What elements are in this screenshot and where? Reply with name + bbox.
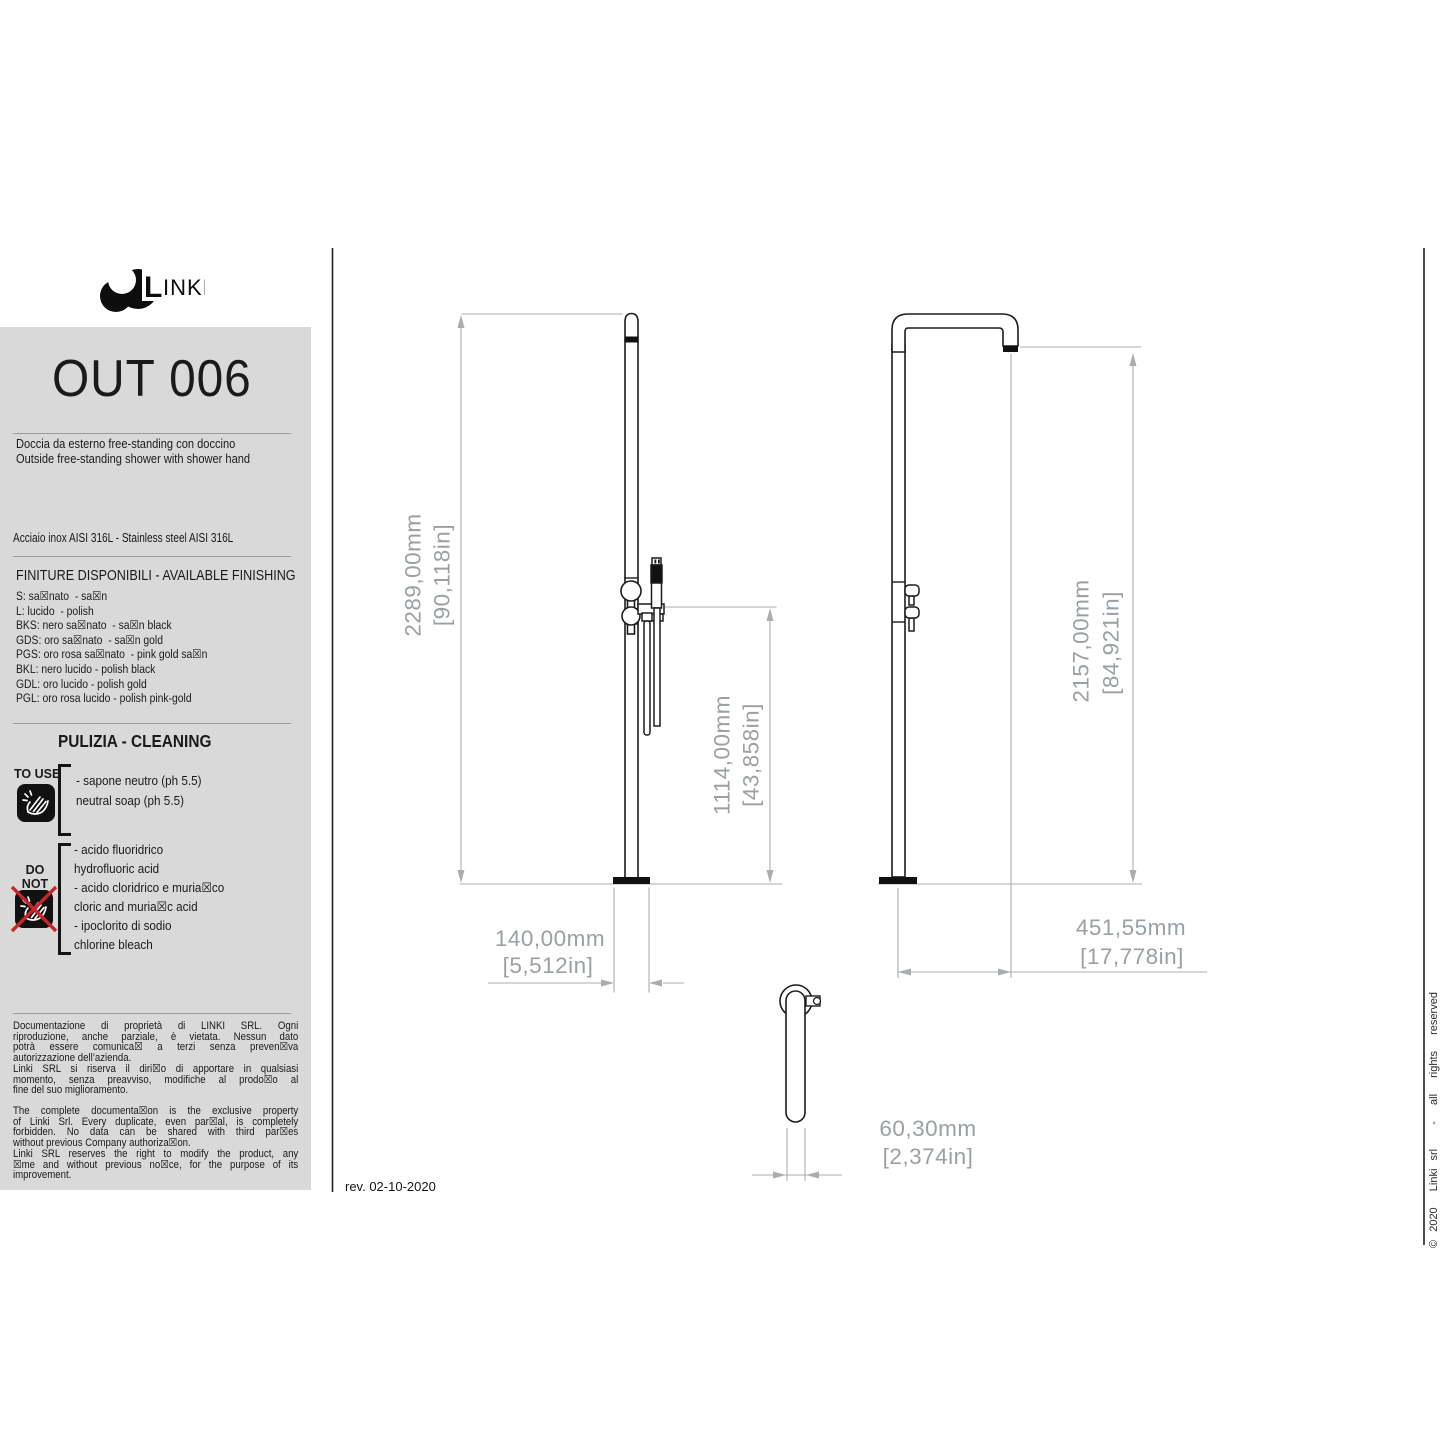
- dim-front-height-in: [90,118in]: [430, 524, 455, 626]
- mixer-knobs-side: [905, 585, 919, 631]
- datasheet-page: L INKI OUT 006 Doccia da esterno free-st…: [0, 0, 1445, 1445]
- dim-base-width-in: [5,512in]: [503, 953, 594, 978]
- front-view: [460, 314, 782, 993]
- base-plate-side: [879, 877, 917, 884]
- dim-arm-width-mm: 60,30mm: [879, 1116, 976, 1141]
- dim-arm-width-in: [2,374in]: [883, 1144, 974, 1169]
- top-view: 60,30mm [2,374in]: [752, 985, 977, 1181]
- dim-side-height-mm: 2157,00mm: [1069, 579, 1094, 702]
- dim-front-height-mm: 2289,00mm: [401, 513, 426, 636]
- revision-label: rev. 02-10-2020: [345, 1179, 436, 1194]
- dim-depth-in: [17,778in]: [1080, 944, 1184, 969]
- hand-shower-front: [638, 558, 664, 735]
- shower-column-side: [892, 345, 905, 877]
- column-joint-band: [625, 337, 639, 343]
- side-dimensions: 2157,00mm [84,921in] 451,55mm [17,778in]: [898, 353, 1207, 976]
- dim-depth-mm: 451,55mm: [1076, 915, 1186, 940]
- dim-mixer-height-mm: 1114,00mm: [710, 695, 735, 815]
- dim-base-width-mm: 140,00mm: [495, 926, 605, 951]
- dim-side-height-in: [84,921in]: [1099, 591, 1124, 695]
- base-plate-front: [613, 877, 650, 884]
- shower-head-side: [1003, 346, 1018, 352]
- front-dimensions: 2289,00mm [90,118in] 1114,00mm [43,858in…: [401, 315, 774, 987]
- copyright-label: © 2020 Linki srl - all rights reserved: [1428, 992, 1440, 1248]
- arm-plan-outline: [786, 991, 805, 1122]
- technical-drawing: 2289,00mm [90,118in] 1114,00mm [43,858in…: [0, 0, 1445, 1445]
- shower-arm-side: [892, 314, 1018, 352]
- dim-mixer-height-in: [43,858in]: [739, 703, 764, 807]
